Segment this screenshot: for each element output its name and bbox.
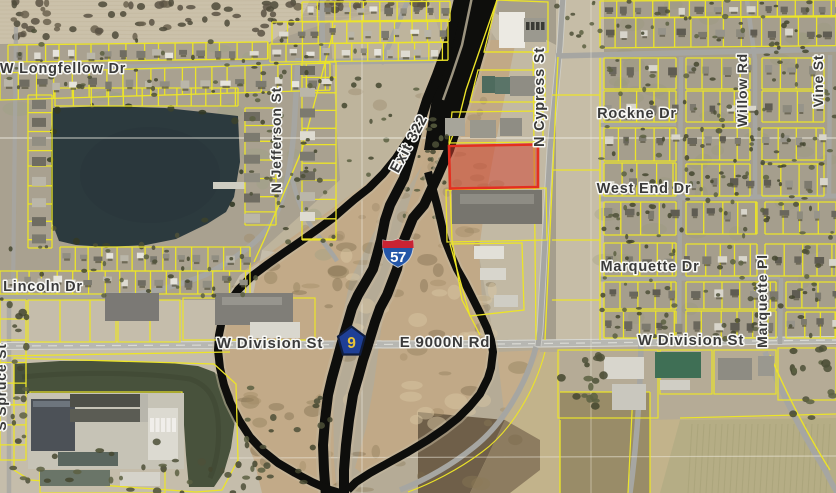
- svg-text:W Longfellow Dr: W Longfellow Dr: [0, 61, 126, 77]
- svg-text:Vine St: Vine St: [810, 55, 826, 108]
- svg-text:S Spruce St: S Spruce St: [0, 343, 9, 430]
- svg-text:Marquette Dr: Marquette Dr: [600, 259, 699, 275]
- svg-text:57: 57: [390, 249, 406, 266]
- svg-text:9: 9: [347, 335, 356, 352]
- svg-text:Lincoln Dr: Lincoln Dr: [3, 279, 83, 295]
- svg-text:Willow Rd: Willow Rd: [734, 53, 750, 127]
- svg-text:Marquette Pl: Marquette Pl: [754, 254, 770, 348]
- svg-text:N Jefferson St: N Jefferson St: [268, 87, 284, 193]
- svg-text:West End Dr: West End Dr: [597, 181, 692, 197]
- svg-text:E 9000N Rd: E 9000N Rd: [400, 334, 491, 351]
- svg-text:N Cypress St: N Cypress St: [532, 47, 548, 147]
- svg-text:W Division St: W Division St: [638, 332, 744, 349]
- svg-text:Rockne Dr: Rockne Dr: [597, 106, 677, 122]
- svg-text:W Division St: W Division St: [217, 335, 323, 352]
